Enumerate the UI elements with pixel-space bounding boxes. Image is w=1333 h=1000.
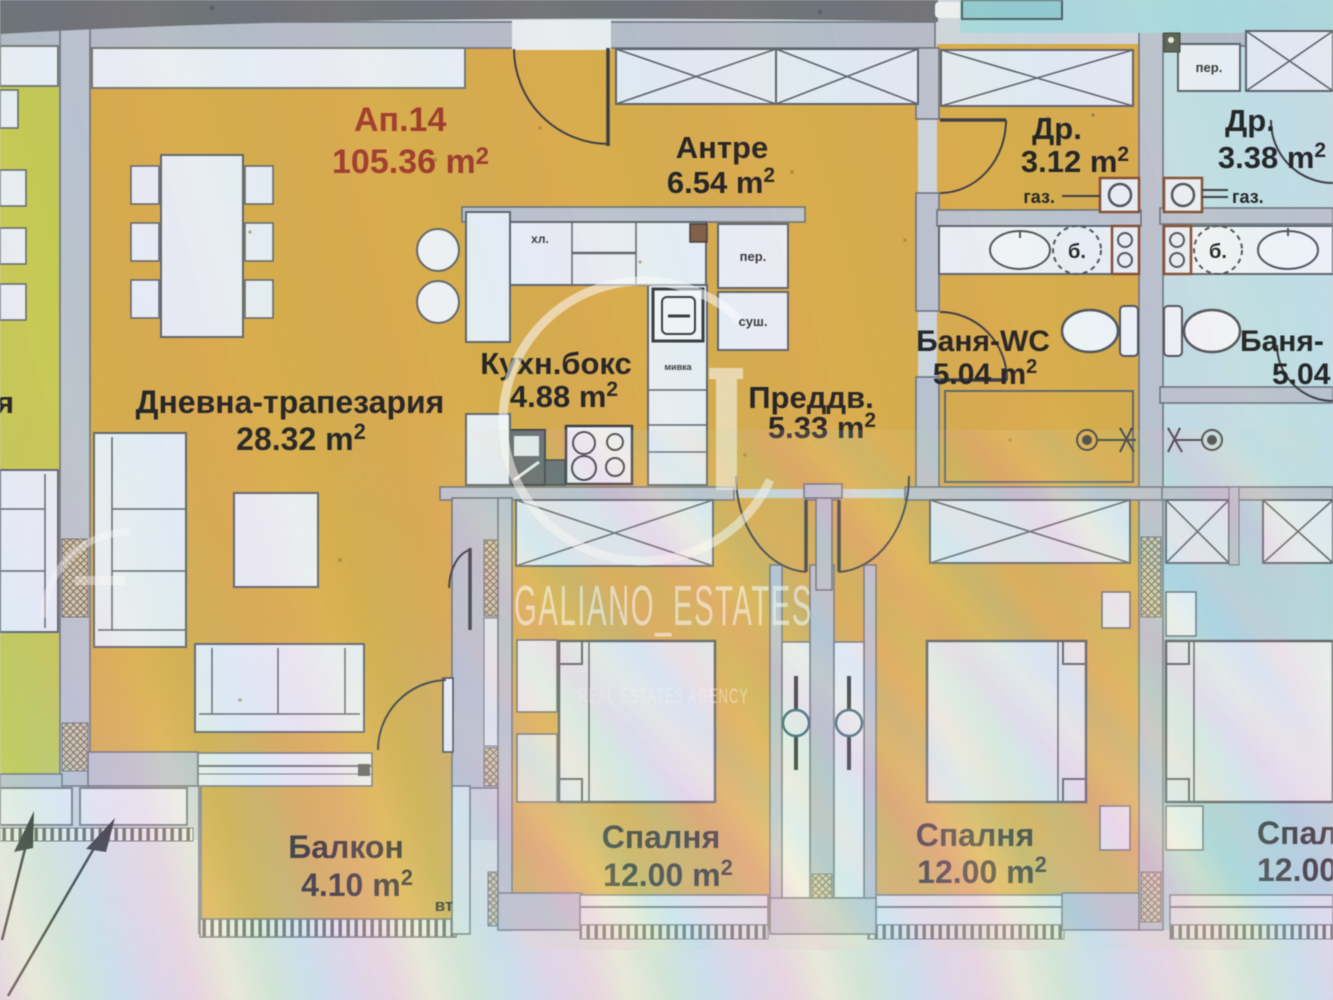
svg-text:12.00: 12.00 <box>1257 852 1333 888</box>
svg-text:Др.: Др. <box>1032 111 1082 146</box>
svg-text:Др.: Др. <box>1225 103 1275 138</box>
svg-text:12.00 m2: 12.00 m2 <box>603 855 733 893</box>
svg-text:б.: б. <box>1068 241 1086 263</box>
svg-text:мивка: мивка <box>664 362 692 372</box>
svg-text:б.: б. <box>1209 241 1227 263</box>
svg-text:газ.: газ. <box>1023 187 1055 207</box>
svg-text:12.00 m2: 12.00 m2 <box>917 852 1047 890</box>
svg-text:вт: вт <box>435 896 454 915</box>
svg-text:хл.: хл. <box>531 232 549 246</box>
svg-text:28.32 m2: 28.32 m2 <box>236 419 366 457</box>
svg-text:пер.: пер. <box>740 249 767 264</box>
svg-text:Дневна-трапезария: Дневна-трапезария <box>136 384 445 420</box>
svg-text:Баня-: Баня- <box>1240 325 1324 358</box>
svg-text:6.54 m2: 6.54 m2 <box>667 164 775 200</box>
svg-text:Кухн.бокс: Кухн.бокс <box>480 346 632 381</box>
svg-text:пер.: пер. <box>1196 60 1223 75</box>
svg-text:Ап.14: Ап.14 <box>354 101 446 139</box>
svg-text:Спал: Спал <box>1257 815 1333 851</box>
svg-text:Балкон: Балкон <box>288 829 404 865</box>
svg-text:Антре: Антре <box>676 130 768 165</box>
svg-text:3.38 m2: 3.38 m2 <box>1218 139 1326 175</box>
svg-text:суш.: суш. <box>739 314 768 329</box>
svg-text:3.12 m2: 3.12 m2 <box>1021 143 1129 179</box>
svg-text:105.36 m2: 105.36 m2 <box>332 143 489 181</box>
svg-text:4.10 m2: 4.10 m2 <box>301 865 413 903</box>
svg-text:Спалня: Спалня <box>602 819 721 855</box>
svg-text:5.04: 5.04 <box>1272 358 1331 391</box>
svg-text:GALIANO_ESTATES: GALIANO_ESTATES <box>514 574 813 638</box>
svg-text:я: я <box>0 385 14 420</box>
svg-text:Баня-WC: Баня-WC <box>916 325 1050 358</box>
svg-text:REAL ESTATES AGENCY: REAL ESTATES AGENCY <box>578 685 749 708</box>
svg-text:5.33 m2: 5.33 m2 <box>768 409 876 445</box>
svg-text:газ.: газ. <box>1232 187 1264 207</box>
svg-text:4.88 m2: 4.88 m2 <box>510 378 618 414</box>
svg-text:Спалня: Спалня <box>916 817 1035 853</box>
svg-text:5.04 m2: 5.04 m2 <box>933 356 1038 391</box>
